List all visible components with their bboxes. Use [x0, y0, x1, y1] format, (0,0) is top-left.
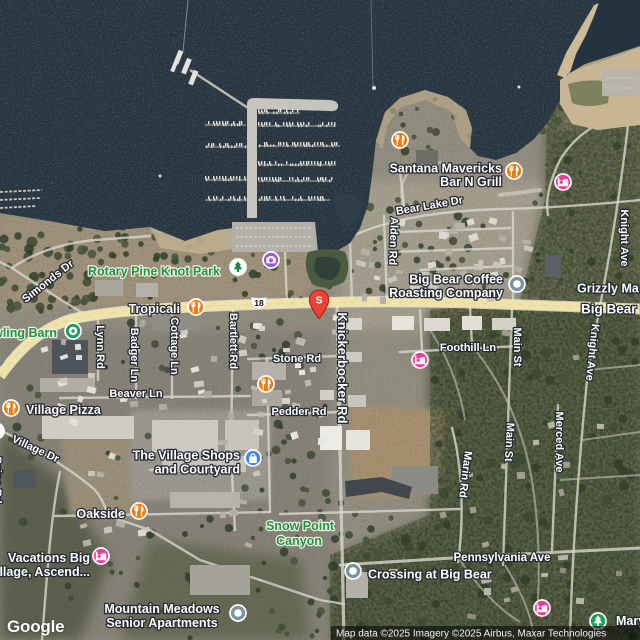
- svg-text:Tropicali: Tropicali: [129, 302, 180, 316]
- svg-text:Rotary Pine Knot Park: Rotary Pine Knot Park: [88, 265, 220, 279]
- svg-text:Big Bear B: Big Bear B: [581, 302, 640, 317]
- svg-text:Grizzly Ma: Grizzly Ma: [577, 282, 640, 296]
- svg-text:Mary: Mary: [616, 614, 640, 628]
- svg-text:18: 18: [254, 298, 264, 308]
- svg-text:Oakside: Oakside: [76, 507, 125, 521]
- svg-text:Knight Ave: Knight Ave: [618, 209, 630, 266]
- svg-text:S: S: [315, 295, 322, 307]
- svg-text:and Courtyard: and Courtyard: [155, 463, 240, 477]
- svg-text:Foothill Ln: Foothill Ln: [440, 342, 496, 354]
- svg-text:Pennsylvania Ave: Pennsylvania Ave: [454, 552, 551, 564]
- svg-text:Cottage Ln: Cottage Ln: [168, 317, 180, 375]
- svg-text:Village Pizza: Village Pizza: [26, 403, 102, 417]
- svg-text:Bartlett Rd: Bartlett Rd: [227, 313, 239, 369]
- svg-text:Pedder Rd: Pedder Rd: [271, 406, 326, 418]
- svg-text:wling Barn: wling Barn: [0, 326, 57, 340]
- svg-text:Mountain Meadows: Mountain Meadows: [104, 602, 219, 616]
- svg-text:Knickerbocker Rd: Knickerbocker Rd: [335, 312, 350, 423]
- svg-text:Crossing at Big Bear: Crossing at Big Bear: [368, 568, 492, 582]
- svg-text:Alden Rd: Alden Rd: [386, 217, 400, 266]
- svg-text:Lynn Rd: Lynn Rd: [94, 325, 106, 369]
- svg-text:Vacations Big: Vacations Big: [8, 551, 90, 565]
- svg-text:Merced Ave: Merced Ave: [553, 412, 565, 473]
- svg-text:llage, Ascend...: llage, Ascend...: [0, 565, 90, 579]
- svg-text:The Village Shops: The Village Shops: [133, 449, 240, 463]
- svg-text:Santana Mavericks: Santana Mavericks: [389, 162, 502, 176]
- svg-text:Beaver Ln: Beaver Ln: [109, 388, 162, 400]
- svg-text:Main St: Main St: [511, 327, 523, 366]
- svg-text:Bar N Grill: Bar N Grill: [440, 175, 502, 189]
- svg-text:Stone Rd: Stone Rd: [273, 353, 321, 365]
- svg-text:Big Bear Coffee: Big Bear Coffee: [409, 273, 503, 287]
- svg-text:Map data ©2025 Imagery ©2025: Map data ©2025 Imagery ©2025 Airbus, Max…: [336, 629, 606, 640]
- svg-text:Main St: Main St: [502, 422, 516, 462]
- svg-text:Roasting Company: Roasting Company: [389, 286, 503, 300]
- svg-text:Badger Ln: Badger Ln: [128, 328, 140, 383]
- svg-text:Paine Rd: Paine Rd: [0, 456, 3, 503]
- svg-text:Snow Point: Snow Point: [266, 519, 335, 533]
- svg-text:Senior Apartments: Senior Apartments: [106, 616, 217, 630]
- svg-text:Canyon: Canyon: [276, 534, 322, 548]
- svg-text:Google: Google: [7, 617, 64, 636]
